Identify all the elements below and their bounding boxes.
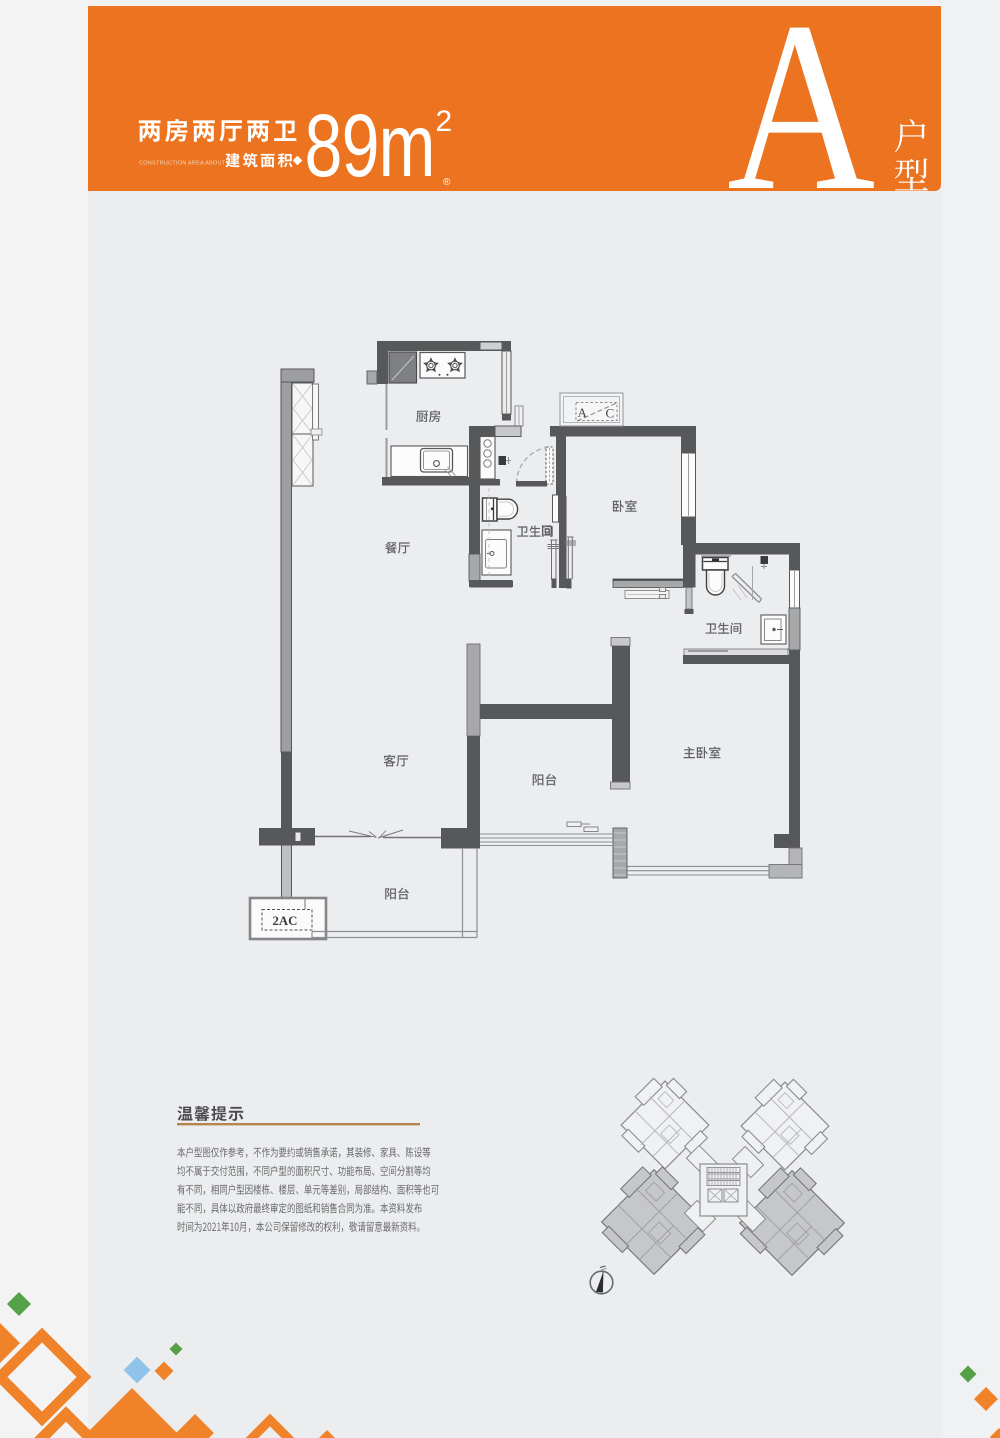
svg-text:A: A [727, 0, 875, 241]
svg-text:A: A [578, 405, 588, 420]
svg-text:CONSTRUCTION AREA ABOUT 89M: CONSTRUCTION AREA ABOUT 89M [139, 161, 239, 167]
svg-text:89m: 89m [305, 95, 435, 195]
svg-text:2AC: 2AC [273, 914, 298, 928]
svg-text:2: 2 [436, 105, 453, 138]
svg-text:®: ® [443, 177, 451, 188]
